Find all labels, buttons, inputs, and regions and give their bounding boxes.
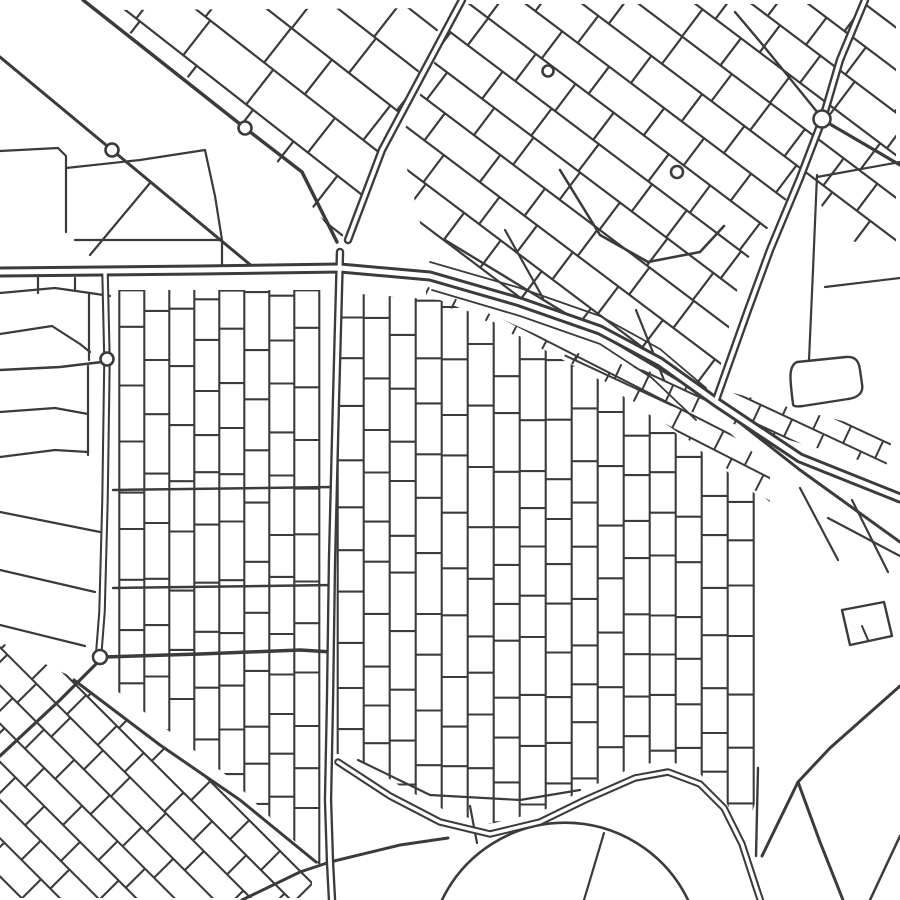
street-map[interactable]	[0, 0, 900, 900]
right-mid-1	[809, 175, 817, 360]
roundabout-west	[101, 353, 114, 366]
roundabouts	[93, 66, 831, 665]
district-top-wedge	[78, 0, 485, 240]
left-band-11	[0, 570, 95, 592]
right-mid-3	[817, 162, 900, 177]
left-band-1	[0, 288, 110, 296]
highway-d-core	[0, 268, 900, 498]
major-roads-casing	[0, 0, 900, 900]
major-roads-core	[0, 0, 900, 900]
ring-connector	[242, 838, 448, 900]
road-b	[83, 0, 337, 242]
compound-stub	[862, 626, 868, 640]
se-small-2	[852, 500, 888, 572]
roundabout-ne	[671, 166, 683, 178]
stub-to-ring	[470, 806, 477, 843]
left-band-12	[0, 625, 85, 646]
district-street-grids	[0, 0, 900, 900]
lake-radial	[584, 833, 604, 900]
roundabout-a	[106, 144, 119, 157]
corner-bottom-right	[870, 836, 900, 900]
curved-roads	[442, 357, 862, 900]
left-band-10	[0, 512, 100, 532]
city-map-canvas[interactable]	[0, 0, 900, 900]
road-g	[104, 650, 332, 657]
road-k2	[798, 782, 843, 900]
left-band-4	[0, 326, 90, 352]
left-band-9	[0, 450, 88, 457]
left-band-8	[0, 408, 88, 414]
top-left-3	[205, 150, 222, 240]
roundabout-ne-street	[823, 120, 900, 165]
right-mid-2	[825, 278, 900, 287]
top-left-2	[66, 150, 205, 168]
roundabout-b	[239, 122, 252, 135]
top-left-5	[90, 183, 150, 255]
roundabout-topcenter	[543, 66, 554, 77]
top-left-1	[0, 148, 66, 232]
roundabout-southwest	[93, 650, 107, 664]
top-left-4	[75, 240, 222, 268]
left-band-5	[0, 362, 102, 370]
street-lines	[0, 0, 900, 900]
loop-road	[790, 357, 862, 407]
maze-collector-2	[113, 585, 333, 588]
district-maze-east	[338, 286, 754, 844]
road-k	[762, 686, 900, 856]
maze-edge-vertical	[756, 768, 758, 856]
district-maze-west	[119, 284, 319, 870]
district-district-45	[0, 602, 324, 900]
se-small-3	[800, 488, 838, 560]
roundabout-topright	[814, 111, 831, 128]
road-f-tail	[0, 660, 100, 756]
highway-d-casing	[0, 268, 900, 498]
